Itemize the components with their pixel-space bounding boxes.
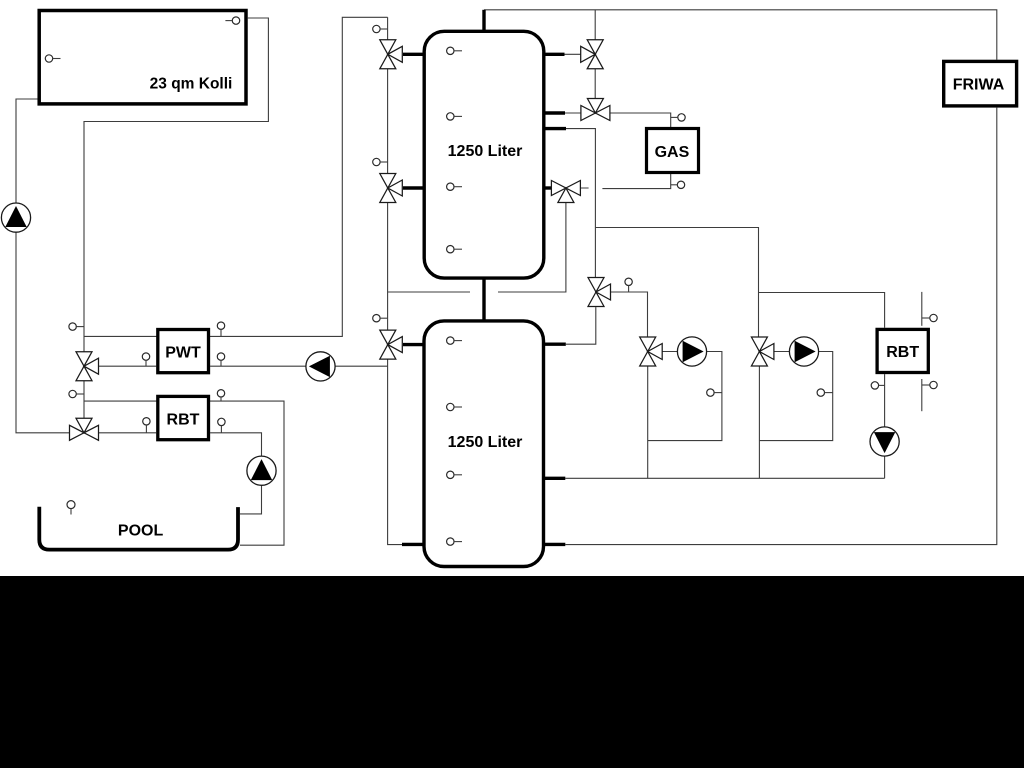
svg-text:PWT: PWT <box>165 345 201 362</box>
svg-text:1250 Liter: 1250 Liter <box>448 434 523 451</box>
svg-text:1250 Liter: 1250 Liter <box>448 143 523 160</box>
svg-text:POOL: POOL <box>118 523 164 540</box>
svg-text:23 qm Kolli: 23 qm Kolli <box>150 76 233 93</box>
svg-text:RBT: RBT <box>886 344 919 361</box>
svg-text:RBT: RBT <box>167 412 200 429</box>
svg-text:FRIWA: FRIWA <box>953 77 1005 94</box>
svg-text:GAS: GAS <box>655 144 690 161</box>
